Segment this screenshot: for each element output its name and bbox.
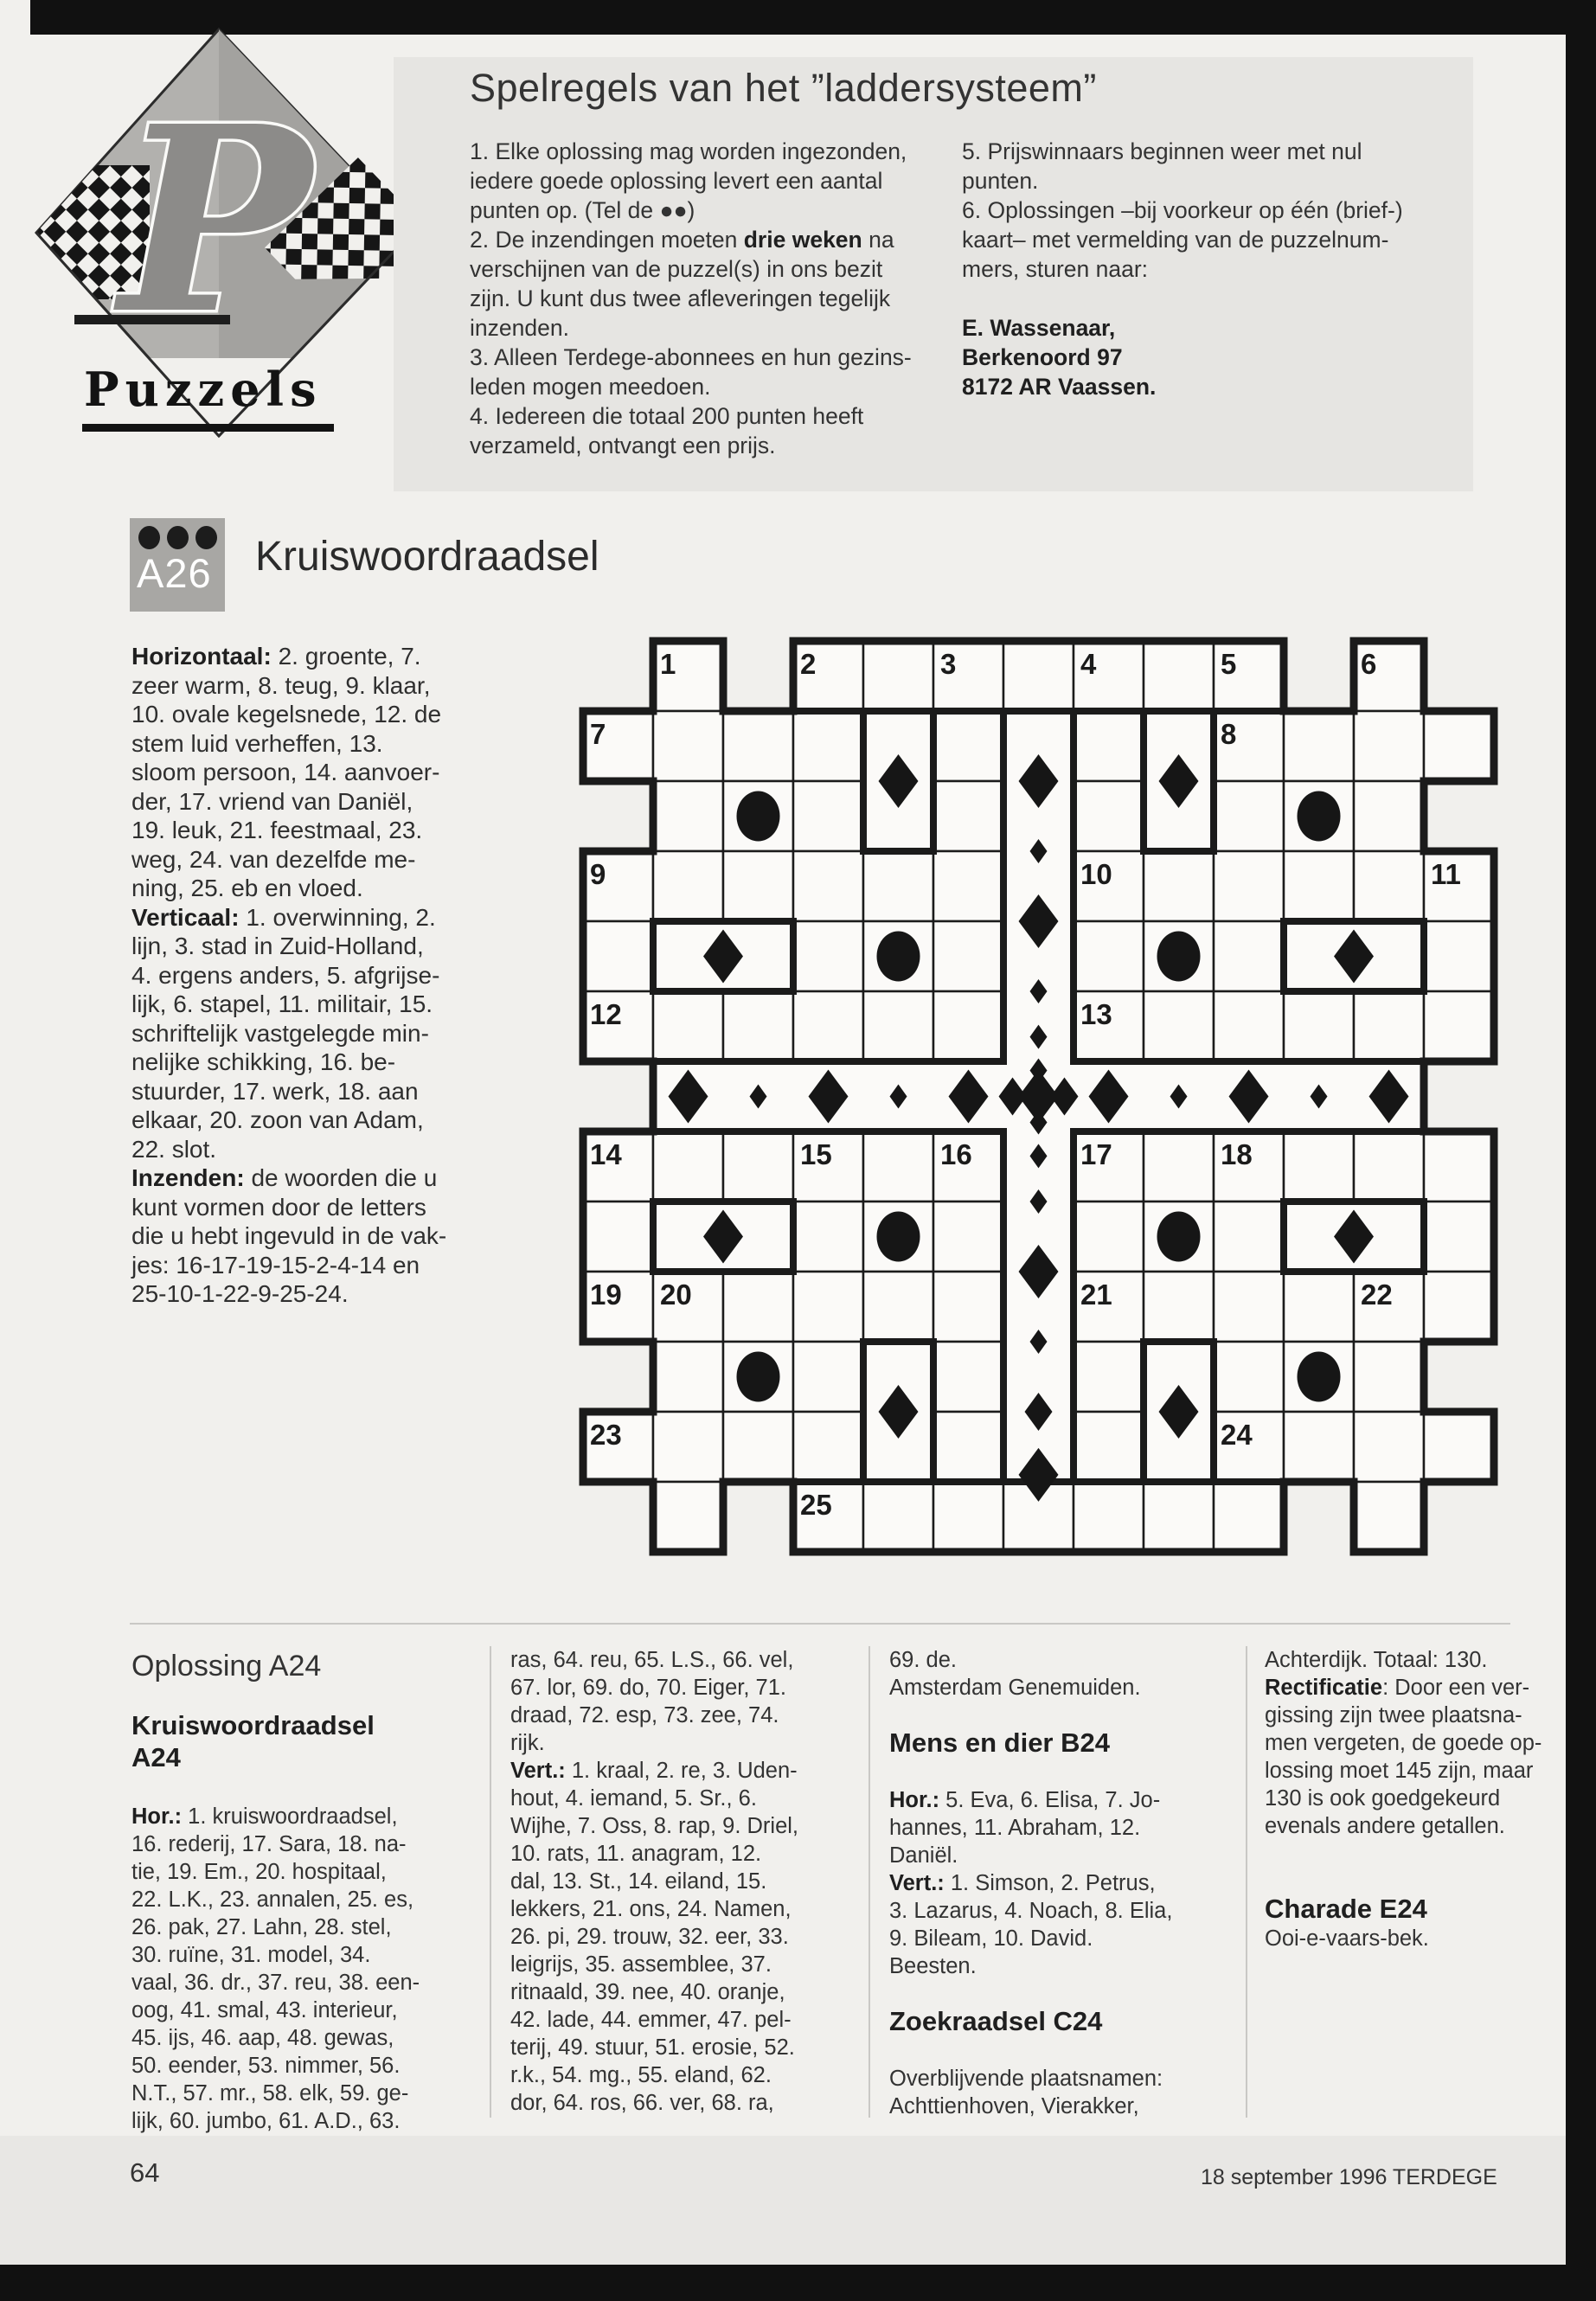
- svg-text:4: 4: [1080, 648, 1097, 680]
- svg-text:17: 17: [1080, 1138, 1112, 1170]
- svg-text:3: 3: [940, 648, 956, 680]
- solution-text: Hor.: 1. kruiswoordraadsel, 16. rederij,…: [131, 1803, 495, 2135]
- logo-letter: P: [112, 70, 319, 370]
- svg-text:10: 10: [1080, 858, 1112, 890]
- svg-text:15: 15: [800, 1138, 832, 1170]
- solutions-column-1: Oplossing A24 Kruiswoordraadsel A24 Hor.…: [131, 1646, 495, 2135]
- scan-edge-right: [1566, 0, 1596, 2301]
- svg-text:20: 20: [660, 1279, 692, 1311]
- scan-edge-bottom: [0, 2265, 1596, 2301]
- issue-date: 18 september 1996 TERDEGE: [1201, 2165, 1497, 2190]
- svg-text:9: 9: [590, 858, 606, 890]
- footer-band: [0, 2136, 1566, 2265]
- puzzle-badge: A26: [130, 518, 225, 612]
- svg-text:16: 16: [940, 1138, 972, 1170]
- svg-text:24: 24: [1221, 1419, 1253, 1451]
- logo-wordmark: Puzzels: [82, 362, 334, 432]
- solutions-column-4: Achterdijk. Totaal: 130. Rectificatie: D…: [1265, 1646, 1596, 1952]
- svg-text:7: 7: [590, 718, 606, 750]
- rules-panel: Spelregels van het ”laddersysteem” 1. El…: [394, 57, 1473, 491]
- svg-text:11: 11: [1431, 858, 1461, 890]
- svg-text:1: 1: [660, 648, 676, 680]
- section-divider: [130, 1623, 1510, 1625]
- page-number: 64: [130, 2157, 159, 2189]
- solutions-column-3: 69. de. Amsterdam Genemuiden. Mens en di…: [889, 1646, 1253, 2120]
- rules-column-right: 5. Prijswinnaars beginnen weer met nul p…: [962, 137, 1471, 401]
- svg-text:6: 6: [1361, 648, 1376, 680]
- svg-text:8: 8: [1221, 718, 1236, 750]
- solution-text: Achterdijk. Totaal: 130. Rectificatie: D…: [1265, 1646, 1596, 1952]
- crossword-grid: 1234567891011121314151617181920212223242…: [574, 632, 1503, 1565]
- solution-text: 69. de. Amsterdam Genemuiden. Mens en di…: [889, 1646, 1253, 2120]
- puzzle-title: Kruiswoordraadsel: [255, 533, 599, 580]
- svg-text:14: 14: [590, 1138, 622, 1170]
- svg-text:12: 12: [590, 998, 622, 1030]
- rules-title: Spelregels van het ”laddersysteem”: [470, 66, 1097, 111]
- svg-text:5: 5: [1221, 648, 1236, 680]
- svg-text:18: 18: [1221, 1138, 1253, 1170]
- badge-label: A26: [137, 553, 225, 593]
- svg-text:13: 13: [1080, 998, 1112, 1030]
- solution-text: ras, 64. reu, 65. L.S., 66. vel, 67. lor…: [510, 1646, 874, 2117]
- solutions-title: Oplossing A24: [131, 1650, 495, 1683]
- svg-text:22: 22: [1361, 1279, 1393, 1311]
- svg-text:23: 23: [590, 1419, 622, 1451]
- clues-text: Horizontaal: 2. groente, 7. zeer warm, 8…: [131, 642, 603, 1309]
- svg-text:2: 2: [800, 648, 816, 680]
- svg-text:19: 19: [590, 1279, 622, 1311]
- rules-column-left: 1. Elke oplossing mag worden ingezonden,…: [470, 137, 967, 460]
- svg-text:25: 25: [800, 1489, 832, 1521]
- svg-text:21: 21: [1080, 1279, 1112, 1311]
- badge-dots-icon: [138, 526, 225, 549]
- solutions-column-2: ras, 64. reu, 65. L.S., 66. vel, 67. lor…: [510, 1646, 874, 2117]
- magazine-page: P Puzzels Spelregels van het ”laddersyst…: [0, 0, 1596, 2301]
- solution-heading-kruiswoordraadsel-a24: Kruiswoordraadsel A24: [131, 1709, 495, 1773]
